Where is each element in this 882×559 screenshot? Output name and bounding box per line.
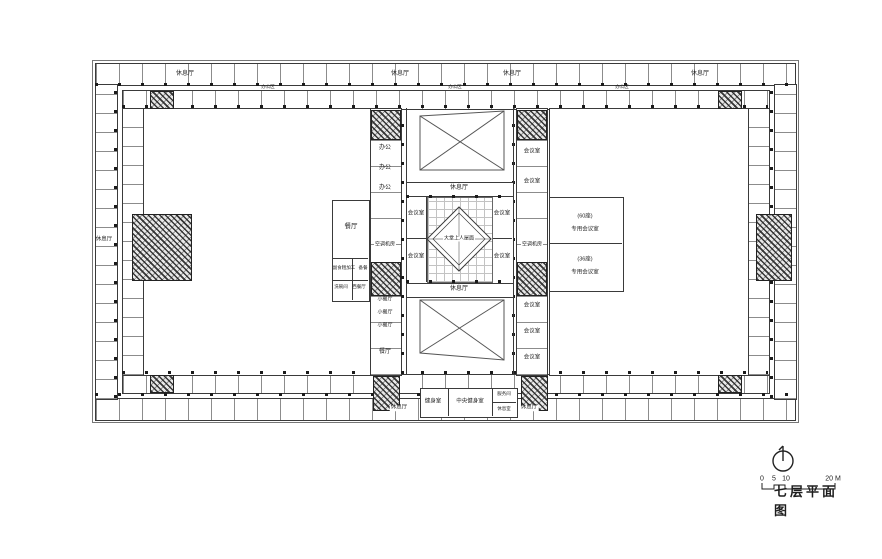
drawing-title: 七层平面图 — [774, 481, 846, 519]
room-label: 大堂上人屋面 — [443, 237, 475, 242]
room-label: 会议室 — [524, 303, 541, 309]
room-label: 办公区 — [448, 85, 462, 90]
room-label: 办公区 — [261, 85, 275, 90]
room-label: 餐厅 — [378, 349, 392, 355]
room-label: 空调机房 — [374, 243, 396, 248]
room-label: 小餐厅 — [376, 311, 393, 316]
room-label: 休息厅 — [176, 71, 194, 77]
room-label: 休息厅 — [391, 71, 409, 77]
room-label: 西餐厅 — [352, 285, 366, 290]
room-label: 餐厅 — [345, 224, 358, 231]
room-label: 健身室 — [425, 399, 442, 405]
room-label: 会议室 — [524, 149, 541, 155]
room-label: 专用会议室 — [571, 227, 599, 233]
room-label: 副食粗加工 — [333, 266, 356, 271]
room-label: 办公区 — [615, 85, 629, 90]
room-label: 休息厅 — [520, 405, 539, 411]
room-label: 会议室 — [524, 329, 541, 335]
room-label: 服务间 — [497, 392, 511, 397]
room-label: 小餐厅 — [376, 324, 393, 329]
room-label: 休息室 — [497, 407, 511, 412]
room-label: 会议室 — [524, 355, 541, 361]
room-label: 办公 — [379, 185, 391, 191]
room-label: 会议室 — [408, 211, 425, 217]
room-label: (60座) — [577, 214, 592, 220]
room-label: 休息厅 — [691, 71, 709, 77]
room-label: 休息厅 — [390, 405, 409, 411]
room-label: 休息厅 — [503, 71, 521, 77]
room-label: 休息厅 — [96, 237, 113, 243]
room-label: 中央健身室 — [456, 399, 484, 405]
room-label: 休息厅 — [450, 286, 468, 292]
room-labels-layer: 休息厅休息厅休息厅休息厅办公区办公区办公区休息厅办公办公办公空调机房小餐厅小餐厅… — [0, 0, 882, 559]
room-label: 专用会议室 — [571, 270, 599, 276]
room-label: 休息厅 — [450, 185, 468, 191]
room-label: 会议室 — [408, 254, 425, 260]
room-label: 会议室 — [494, 211, 511, 217]
room-label: (36座) — [577, 257, 592, 263]
room-label: 空调机房 — [521, 243, 543, 248]
room-label: 洗碗间 — [334, 285, 348, 290]
scale-tick-0: 0 — [760, 476, 764, 483]
room-label: 办公 — [379, 145, 391, 151]
room-label: 备餐 — [359, 266, 368, 271]
room-label: 会议室 — [524, 179, 541, 185]
room-label: 小餐厅 — [376, 298, 393, 303]
floor-plan-canvas: 休息厅休息厅休息厅休息厅办公区办公区办公区休息厅办公办公办公空调机房小餐厅小餐厅… — [0, 0, 882, 559]
room-label: 会议室 — [494, 254, 511, 260]
room-label: 办公 — [379, 165, 391, 171]
